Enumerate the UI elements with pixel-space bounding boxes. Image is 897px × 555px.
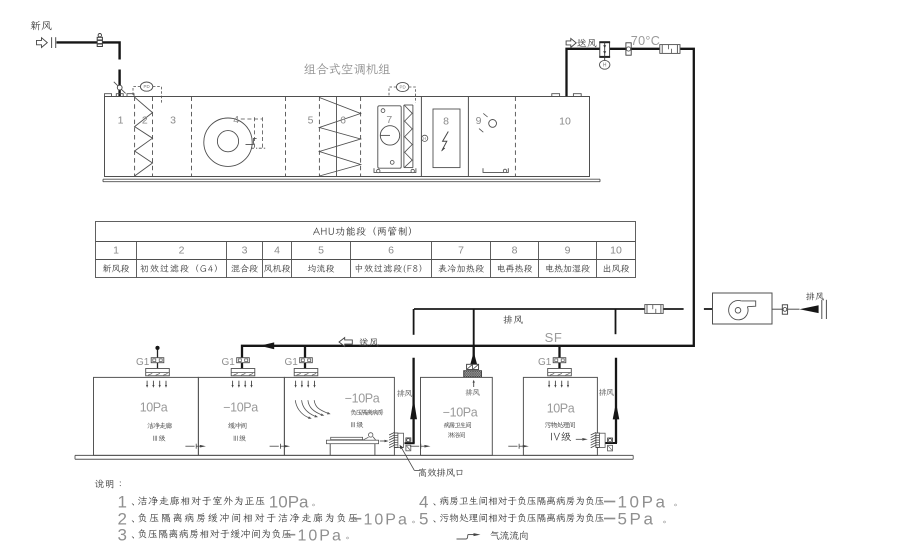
svg-text:8: 8 bbox=[512, 245, 518, 257]
svg-text:10Pa: 10Pa bbox=[298, 527, 343, 544]
svg-text:SF: SF bbox=[545, 330, 563, 345]
svg-text:−10Pa: −10Pa bbox=[443, 405, 478, 419]
svg-text:−10Pa: −10Pa bbox=[223, 400, 258, 414]
svg-text:1: 1 bbox=[113, 245, 119, 257]
svg-text:H: H bbox=[603, 63, 607, 69]
svg-text:H: H bbox=[423, 136, 426, 141]
svg-text:10: 10 bbox=[610, 245, 622, 257]
svg-text:7: 7 bbox=[458, 245, 464, 257]
svg-text:G1: G1 bbox=[136, 357, 150, 368]
svg-text:10Pa: 10Pa bbox=[269, 492, 309, 511]
svg-text:2: 2 bbox=[142, 115, 148, 127]
svg-text:7: 7 bbox=[386, 114, 392, 126]
svg-text:4: 4 bbox=[233, 114, 239, 126]
svg-text:G1: G1 bbox=[284, 357, 298, 368]
svg-text:6: 6 bbox=[388, 245, 394, 257]
svg-text:G1: G1 bbox=[538, 357, 552, 368]
svg-text:PD: PD bbox=[144, 84, 150, 89]
svg-text:5Pa: 5Pa bbox=[618, 509, 656, 528]
svg-text:6: 6 bbox=[340, 115, 346, 127]
svg-text:−10Pa: −10Pa bbox=[345, 391, 380, 405]
svg-text:10: 10 bbox=[559, 116, 571, 128]
svg-text:PD: PD bbox=[400, 85, 406, 90]
svg-text:5: 5 bbox=[419, 509, 428, 528]
svg-text:5: 5 bbox=[318, 245, 324, 257]
svg-text:9: 9 bbox=[565, 245, 571, 257]
svg-text:3: 3 bbox=[118, 525, 127, 544]
svg-text:10Pa: 10Pa bbox=[364, 511, 409, 528]
svg-text:2: 2 bbox=[179, 245, 185, 257]
svg-text:70°C: 70°C bbox=[631, 34, 660, 48]
svg-text:4: 4 bbox=[274, 245, 280, 257]
svg-text:8: 8 bbox=[443, 116, 449, 128]
svg-text:5: 5 bbox=[308, 115, 314, 127]
svg-text:3: 3 bbox=[242, 245, 248, 257]
svg-text:10Pa: 10Pa bbox=[547, 401, 575, 415]
svg-text:10Pa: 10Pa bbox=[140, 400, 168, 414]
svg-text:9: 9 bbox=[476, 115, 482, 127]
svg-text:1: 1 bbox=[118, 115, 124, 127]
svg-text:G1: G1 bbox=[221, 357, 235, 368]
svg-text:3: 3 bbox=[170, 115, 176, 127]
